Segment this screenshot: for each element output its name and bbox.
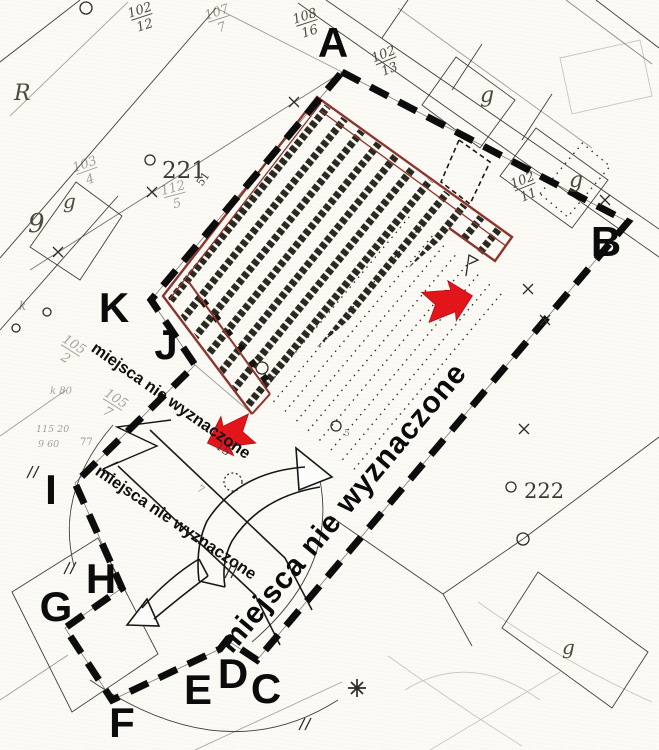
label-9-60: 9 60 — [38, 439, 59, 450]
land-use-label-g: g — [63, 189, 76, 213]
parcel-label-222: 222 — [524, 479, 564, 503]
label-115-20: 115 20 — [36, 424, 69, 435]
land-use-label-9: 9 — [28, 209, 45, 239]
scanned-site-plan-page: A B C D E F G H I J K miejsca nie wyznac… — [0, 0, 659, 750]
label-5: 5 — [344, 429, 350, 439]
vertex-label-B: B — [591, 218, 621, 265]
vertex-label-I: I — [45, 466, 57, 513]
label-k: k — [19, 299, 26, 313]
vertex-label-K: K — [99, 284, 129, 331]
land-use-label-R: R — [13, 81, 31, 106]
vertex-label-E: E — [184, 666, 212, 713]
vertex-label-A: A — [318, 19, 348, 66]
land-use-label-g: g — [569, 168, 583, 193]
land-use-label-g: g — [562, 635, 575, 659]
site-plan-map: A B C D E F G H I J K miejsca nie wyznac… — [0, 0, 659, 750]
vertex-label-G: G — [40, 583, 73, 630]
vertex-label-C: C — [251, 665, 281, 712]
land-use-label-g: g — [480, 83, 494, 108]
vertex-label-D: D — [218, 650, 248, 697]
vertex-label-H: H — [86, 555, 116, 602]
label-77: 77 — [80, 437, 93, 448]
label-k-80: k 80 — [50, 386, 73, 397]
vertex-label-J: J — [154, 321, 177, 368]
vertex-label-F: F — [109, 699, 135, 746]
